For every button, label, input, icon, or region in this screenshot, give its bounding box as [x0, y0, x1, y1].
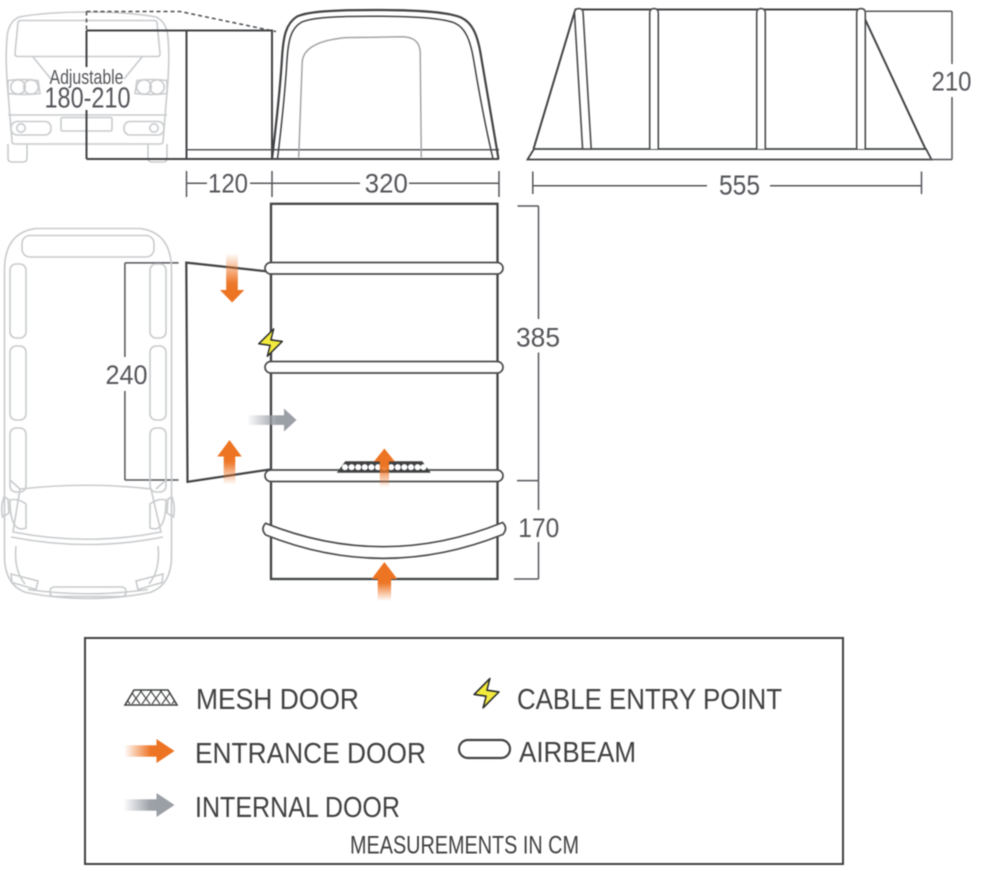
svg-text:CABLE ENTRY POINT: CABLE ENTRY POINT — [517, 684, 782, 716]
svg-text:180-210: 180-210 — [45, 83, 131, 115]
svg-text:AIRBEAM: AIRBEAM — [519, 737, 636, 769]
svg-text:INTERNAL DOOR: INTERNAL DOOR — [195, 792, 400, 824]
svg-text:MESH DOOR: MESH DOOR — [196, 684, 359, 716]
svg-text:555: 555 — [719, 170, 760, 201]
svg-text:385: 385 — [516, 323, 560, 353]
svg-text:240: 240 — [106, 360, 148, 390]
svg-text:210: 210 — [932, 67, 972, 97]
svg-text:320: 320 — [365, 169, 408, 199]
svg-text:120: 120 — [208, 169, 248, 199]
svg-text:MEASUREMENTS IN CM: MEASUREMENTS IN CM — [350, 832, 579, 860]
svg-text:ENTRANCE DOOR: ENTRANCE DOOR — [195, 738, 426, 770]
svg-text:170: 170 — [518, 513, 559, 543]
